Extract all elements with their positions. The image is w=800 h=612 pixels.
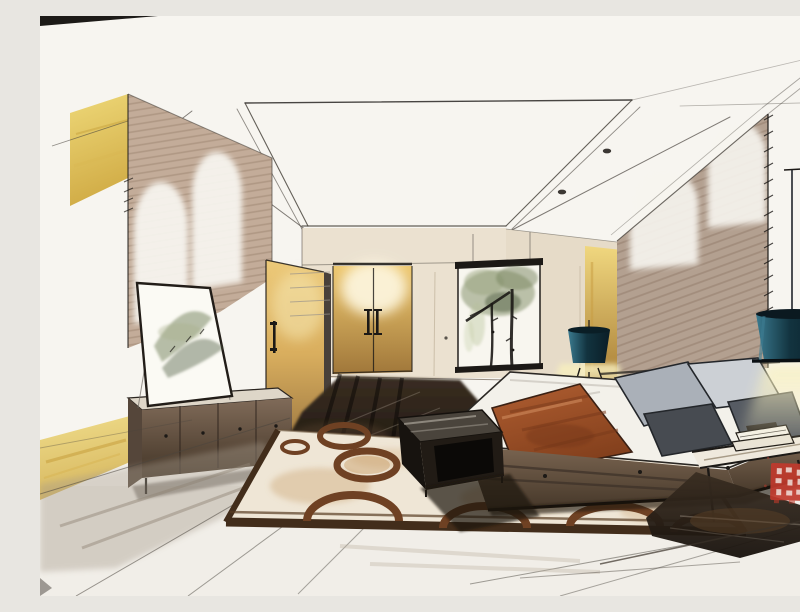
- sketch-canvas: [40, 16, 800, 596]
- interior-sketch-image: Hand-drawn marker and ink rendering of a…: [40, 16, 800, 596]
